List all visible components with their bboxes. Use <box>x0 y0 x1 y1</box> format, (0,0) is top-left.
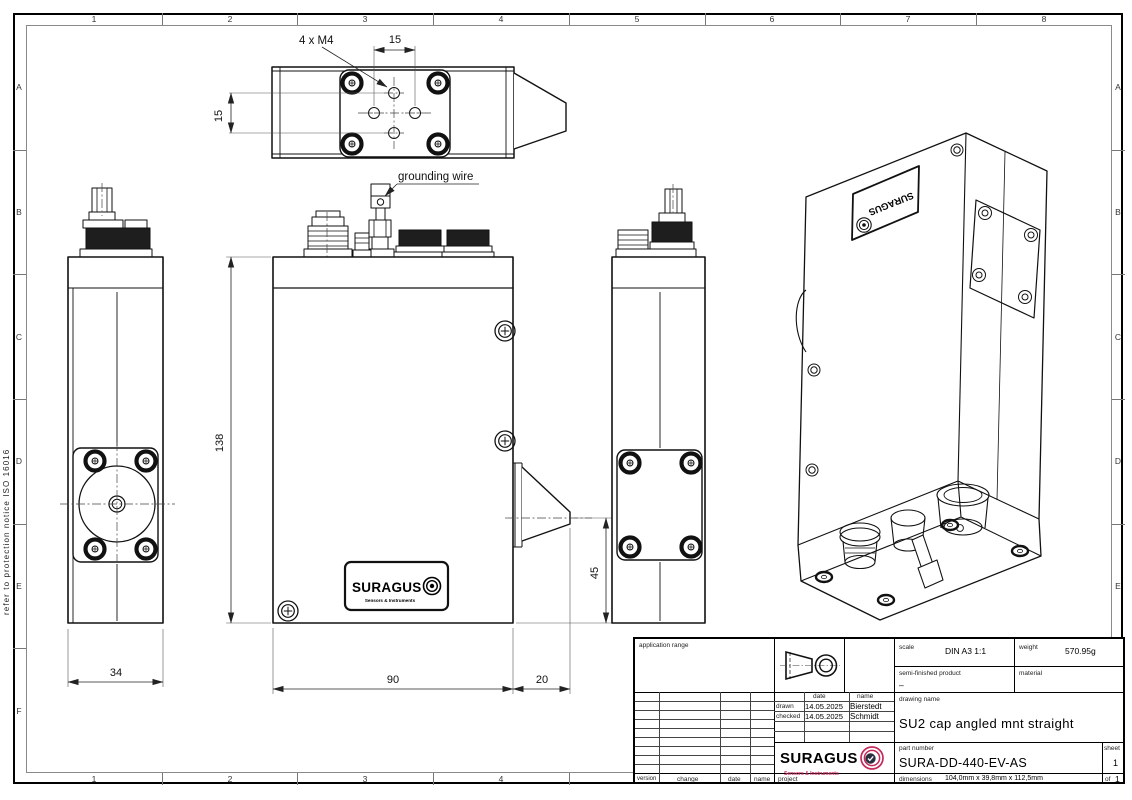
version-label: version <box>637 776 656 782</box>
dim-hole-spacing-h: 15 <box>389 34 401 46</box>
drawing-name-label: drawing name <box>899 696 940 703</box>
of-label: of <box>1105 776 1110 783</box>
sheet-value: 1 <box>1113 758 1118 768</box>
sheet-label: sheet <box>1104 745 1120 752</box>
of-value: 1 <box>1115 774 1120 784</box>
scale-label: scale <box>899 644 914 651</box>
change-label: change <box>677 776 698 783</box>
checked-name: Schmidt <box>850 712 879 721</box>
side-cone <box>505 463 592 547</box>
dim-side-width: 34 <box>110 667 122 679</box>
logo-name: SURAGUS <box>352 580 422 595</box>
isometric-view: SURAGUS <box>796 133 1047 620</box>
material-label: material <box>1019 670 1042 677</box>
dimensions-label: dimensions <box>899 776 932 783</box>
weight-label: weight <box>1019 644 1038 651</box>
front-view: SURAGUS Sensors & Instruments <box>273 184 592 623</box>
logo-name: SURAGUS <box>780 751 858 766</box>
checked-label: checked <box>776 713 800 720</box>
grounding-label: grounding wire <box>398 171 473 183</box>
application-range-label: application range <box>639 642 689 649</box>
side-view-left: 34 <box>60 183 175 687</box>
weight-value: 570.95g <box>1065 646 1096 656</box>
project-label: project <box>778 776 798 783</box>
title-block: application range scale DIN A3 1:1 weigh… <box>633 637 1125 784</box>
scale-value: DIN A3 1:1 <box>945 646 986 656</box>
part-number-label: part number <box>899 745 934 752</box>
logo-tagline: Sensors & Instruments <box>365 598 416 603</box>
name-label: name <box>754 776 770 783</box>
part-number-value: SURA-DD-440-EV-AS <box>899 756 1027 770</box>
drawing-name-value: SU2 cap angled mnt straight <box>899 716 1074 731</box>
dim-cone-height: 45 <box>589 567 601 579</box>
logo-circles-icon <box>859 745 885 771</box>
drawn-date: 14.05.2025 <box>805 702 843 711</box>
side-view-right <box>612 184 705 623</box>
drawing-sheet: refer to protection notice ISO 16016 1 2… <box>0 0 1132 800</box>
dim-front-width: 90 <box>387 674 399 686</box>
dim-height: 138 <box>214 434 226 452</box>
top-view <box>272 67 566 158</box>
semi-finished-label: semi-finished product <box>899 670 961 677</box>
dim-cone-length: 20 <box>536 674 548 686</box>
date-label: date <box>728 776 741 783</box>
thread-callout: 4 x M4 <box>299 35 334 47</box>
dim-hole-spacing-v: 15 <box>213 110 225 122</box>
date-header: date <box>813 693 826 700</box>
drawn-name: Bierstedt <box>850 702 882 711</box>
logo-plate: SURAGUS Sensors & Instruments <box>345 562 448 610</box>
suragus-logo: SURAGUS Sensors & Instruments <box>780 745 885 777</box>
drawn-label: drawn <box>776 703 794 710</box>
logo-circles-icon <box>424 578 441 595</box>
checked-date: 14.05.2025 <box>805 712 843 721</box>
dimensions-value: 104,0mm x 39,8mm x 112,5mm <box>945 775 1043 782</box>
square-connectors <box>394 230 494 257</box>
semi-finished-value: – <box>899 680 904 690</box>
projection-symbol-icon <box>774 639 844 692</box>
name-header: name <box>857 693 873 700</box>
